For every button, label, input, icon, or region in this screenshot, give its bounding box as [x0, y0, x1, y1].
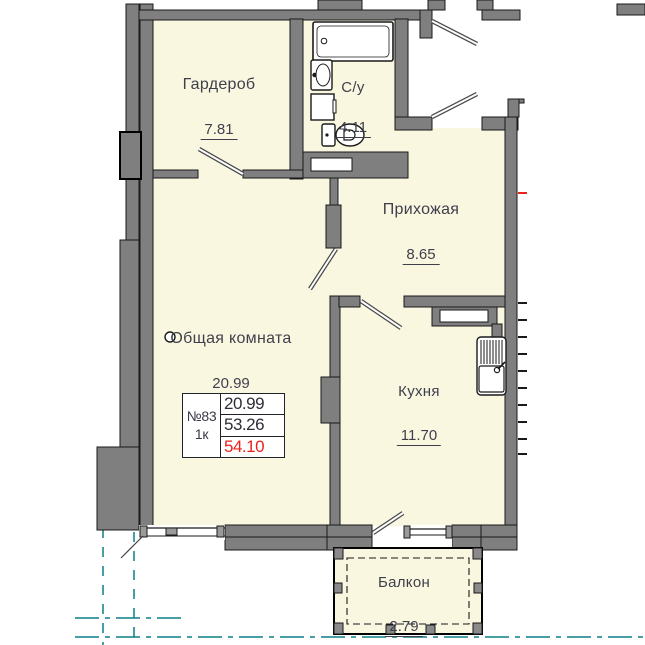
wall-hall-pier — [326, 205, 341, 248]
unit-total-area: 54.10 — [221, 437, 284, 457]
corner-diagonal — [121, 536, 143, 558]
wall-top — [139, 10, 430, 20]
room-label-living: Общая комната 20.99 — [170, 330, 291, 394]
unit-area-without-balcony: 53.26 — [221, 415, 284, 436]
room-label-hall: Прихожая 8.65 — [383, 201, 460, 265]
room-label-garderob: Гардероб 7.81 — [183, 76, 256, 140]
unit-rooms-count: 1к — [195, 426, 208, 444]
wall-bathroom-left — [290, 19, 303, 179]
right-wall-ticks — [518, 192, 527, 455]
plan-drawing — [0, 0, 645, 645]
sink-icon — [311, 60, 332, 90]
unit-number: №83 — [187, 408, 217, 426]
kitchen-window — [404, 525, 452, 550]
wall-left-outer — [126, 4, 139, 241]
unit-living-area: 20.99 — [221, 394, 284, 415]
unit-number-cell: №83 1к — [183, 394, 221, 457]
floor-plan: Гардероб 7.81 С/у 4.11 Прихожая 8.65 Общ… — [0, 0, 645, 645]
room-label-kitchen: Кухня 11.70 — [397, 383, 441, 446]
room-label-balcony: Балкон 2.79 — [378, 574, 430, 637]
kitchen-sink-icon — [477, 337, 506, 395]
washing-machine-icon — [311, 94, 336, 120]
wall-right — [505, 117, 517, 526]
unit-info-table: №83 1к 20.99 53.26 54.10 — [182, 393, 285, 458]
wall-bathroom-right — [395, 19, 408, 129]
bathroom-door — [311, 158, 352, 171]
bathtub-icon — [313, 22, 393, 61]
vent-duct-opening — [440, 310, 488, 322]
room-label-bathroom: С/у 4.11 — [335, 79, 371, 138]
axis-mark-red — [518, 192, 527, 194]
left-wall-window — [120, 132, 141, 179]
wall-left-inner — [140, 4, 153, 530]
wall-kitchen-top — [404, 296, 506, 307]
